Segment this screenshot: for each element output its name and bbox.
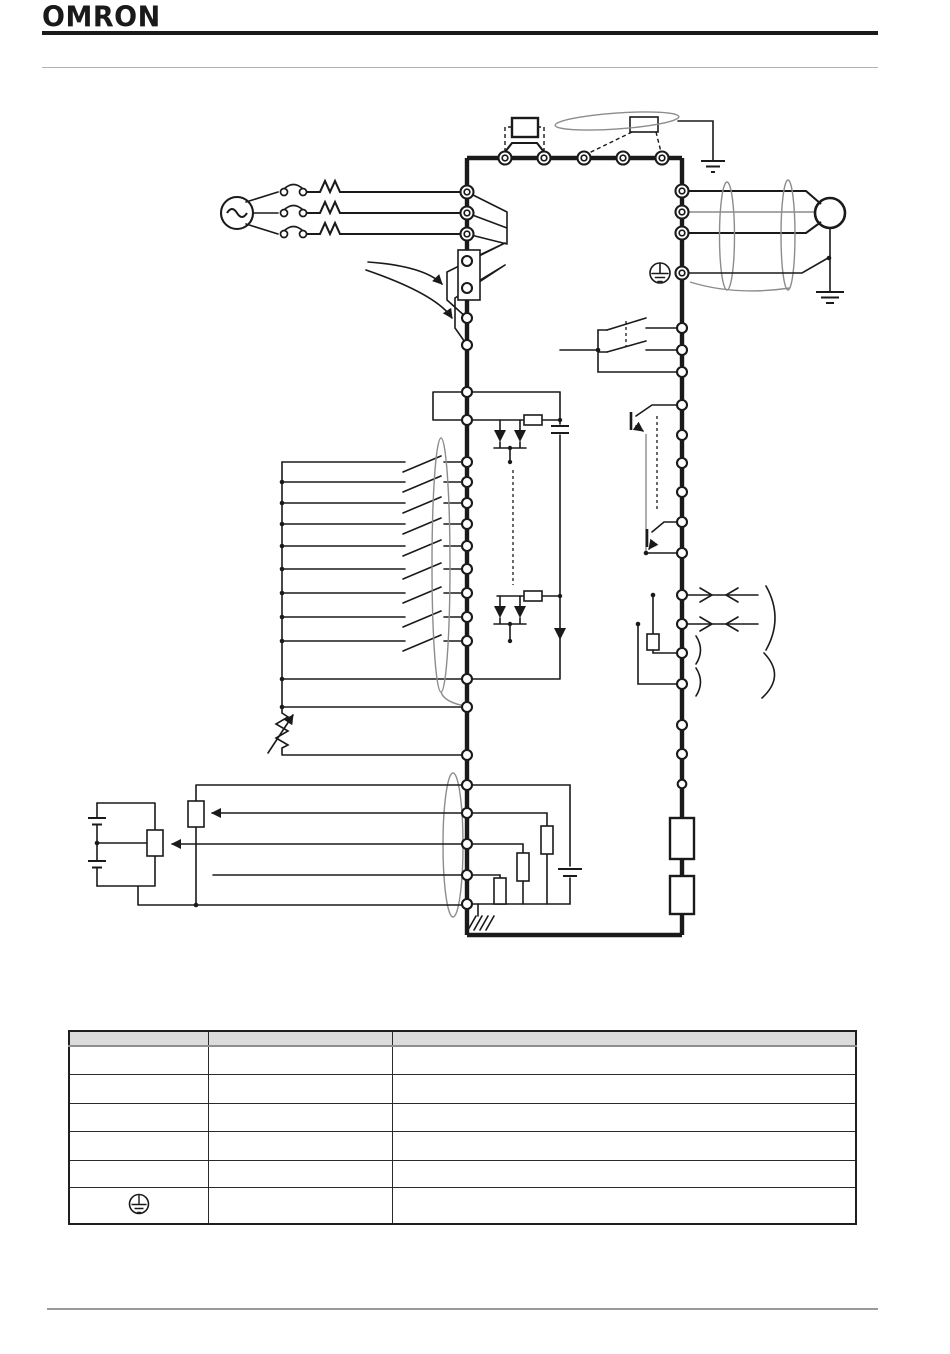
terminal-table xyxy=(68,1030,855,1225)
termination-resistor-icon xyxy=(647,634,659,650)
fuse-icon xyxy=(307,181,467,234)
footer-rule xyxy=(47,1308,878,1310)
table-cell xyxy=(69,1160,208,1187)
chassis-ground-icon xyxy=(468,916,494,930)
table-cell xyxy=(69,1131,208,1160)
manual-page: { "page": { "brand": "OMRON" }, "colors"… xyxy=(0,0,950,1354)
callout-arrow xyxy=(368,262,442,284)
digital-inputs xyxy=(280,438,467,709)
table-cell xyxy=(392,1160,856,1187)
analog-meters xyxy=(88,785,467,907)
cable-brace xyxy=(762,586,775,698)
table-cell xyxy=(69,1103,208,1131)
table-header-cell xyxy=(392,1031,856,1046)
open-collector-outputs xyxy=(631,405,682,555)
header-rule xyxy=(42,31,878,35)
analog-meter-icon xyxy=(188,801,204,827)
table-cell xyxy=(208,1131,392,1160)
table-cell xyxy=(392,1131,856,1160)
table-row xyxy=(69,1131,856,1160)
callout-arrow xyxy=(366,270,452,318)
table-header-cell xyxy=(208,1031,392,1046)
shield-cable-icon xyxy=(555,109,680,134)
table-cell xyxy=(392,1046,856,1074)
table-cell xyxy=(208,1187,392,1224)
power-terminals xyxy=(461,152,689,280)
header-subrule xyxy=(42,67,878,68)
table-cell xyxy=(392,1103,856,1131)
protective-earth-icon xyxy=(126,1190,152,1218)
termination-resistor-block xyxy=(670,876,694,914)
table-row xyxy=(69,1046,856,1074)
table-row xyxy=(69,1187,856,1224)
dc-reactor-option xyxy=(505,118,544,152)
table-cell xyxy=(69,1046,208,1074)
inverter-outline xyxy=(467,158,694,935)
contact-icon xyxy=(281,185,307,238)
dc-reactor-icon xyxy=(512,118,538,137)
table-cell xyxy=(208,1103,392,1131)
protective-earth-icon xyxy=(650,263,670,283)
battery-icon xyxy=(558,869,582,876)
table-row xyxy=(69,1074,856,1103)
ground-icon xyxy=(816,292,844,303)
frequency-pot xyxy=(268,707,467,755)
rs485-port xyxy=(636,586,775,698)
table-cell-pe-symbol xyxy=(69,1187,208,1224)
table-row xyxy=(69,1160,856,1187)
table-cell xyxy=(392,1187,856,1224)
table-cell xyxy=(208,1074,392,1103)
table-header-cell xyxy=(69,1031,208,1046)
table-header-row xyxy=(69,1031,856,1046)
motor-output xyxy=(650,180,845,303)
ground-icon xyxy=(701,161,725,172)
table-cell xyxy=(392,1074,856,1103)
optocoupler-circuit xyxy=(433,392,569,679)
table-cell xyxy=(208,1046,392,1074)
table-cell xyxy=(69,1074,208,1103)
relay-output xyxy=(560,318,682,372)
analog-meter-icon xyxy=(147,830,163,856)
shield-cable-icon xyxy=(443,773,463,917)
wiring-diagram xyxy=(0,80,950,980)
termination-resistor-block xyxy=(670,818,694,859)
omron-logo: OMRON xyxy=(42,1,161,33)
control-terminals xyxy=(462,256,687,909)
motor-icon xyxy=(815,198,845,228)
table-cell xyxy=(208,1160,392,1187)
table-row xyxy=(69,1103,856,1131)
